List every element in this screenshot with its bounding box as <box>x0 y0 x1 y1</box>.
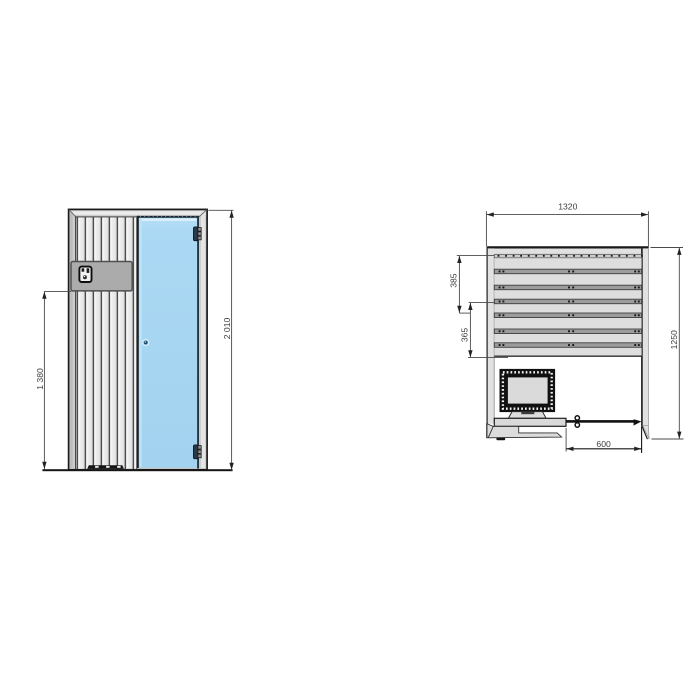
svg-text:385: 385 <box>449 273 459 288</box>
svg-text:2 010: 2 010 <box>222 318 232 340</box>
svg-text:600: 600 <box>596 439 611 449</box>
svg-text:1320: 1320 <box>558 202 577 212</box>
svg-text:1250: 1250 <box>669 330 679 349</box>
svg-text:1 380: 1 380 <box>35 368 45 390</box>
svg-text:365: 365 <box>460 328 470 343</box>
